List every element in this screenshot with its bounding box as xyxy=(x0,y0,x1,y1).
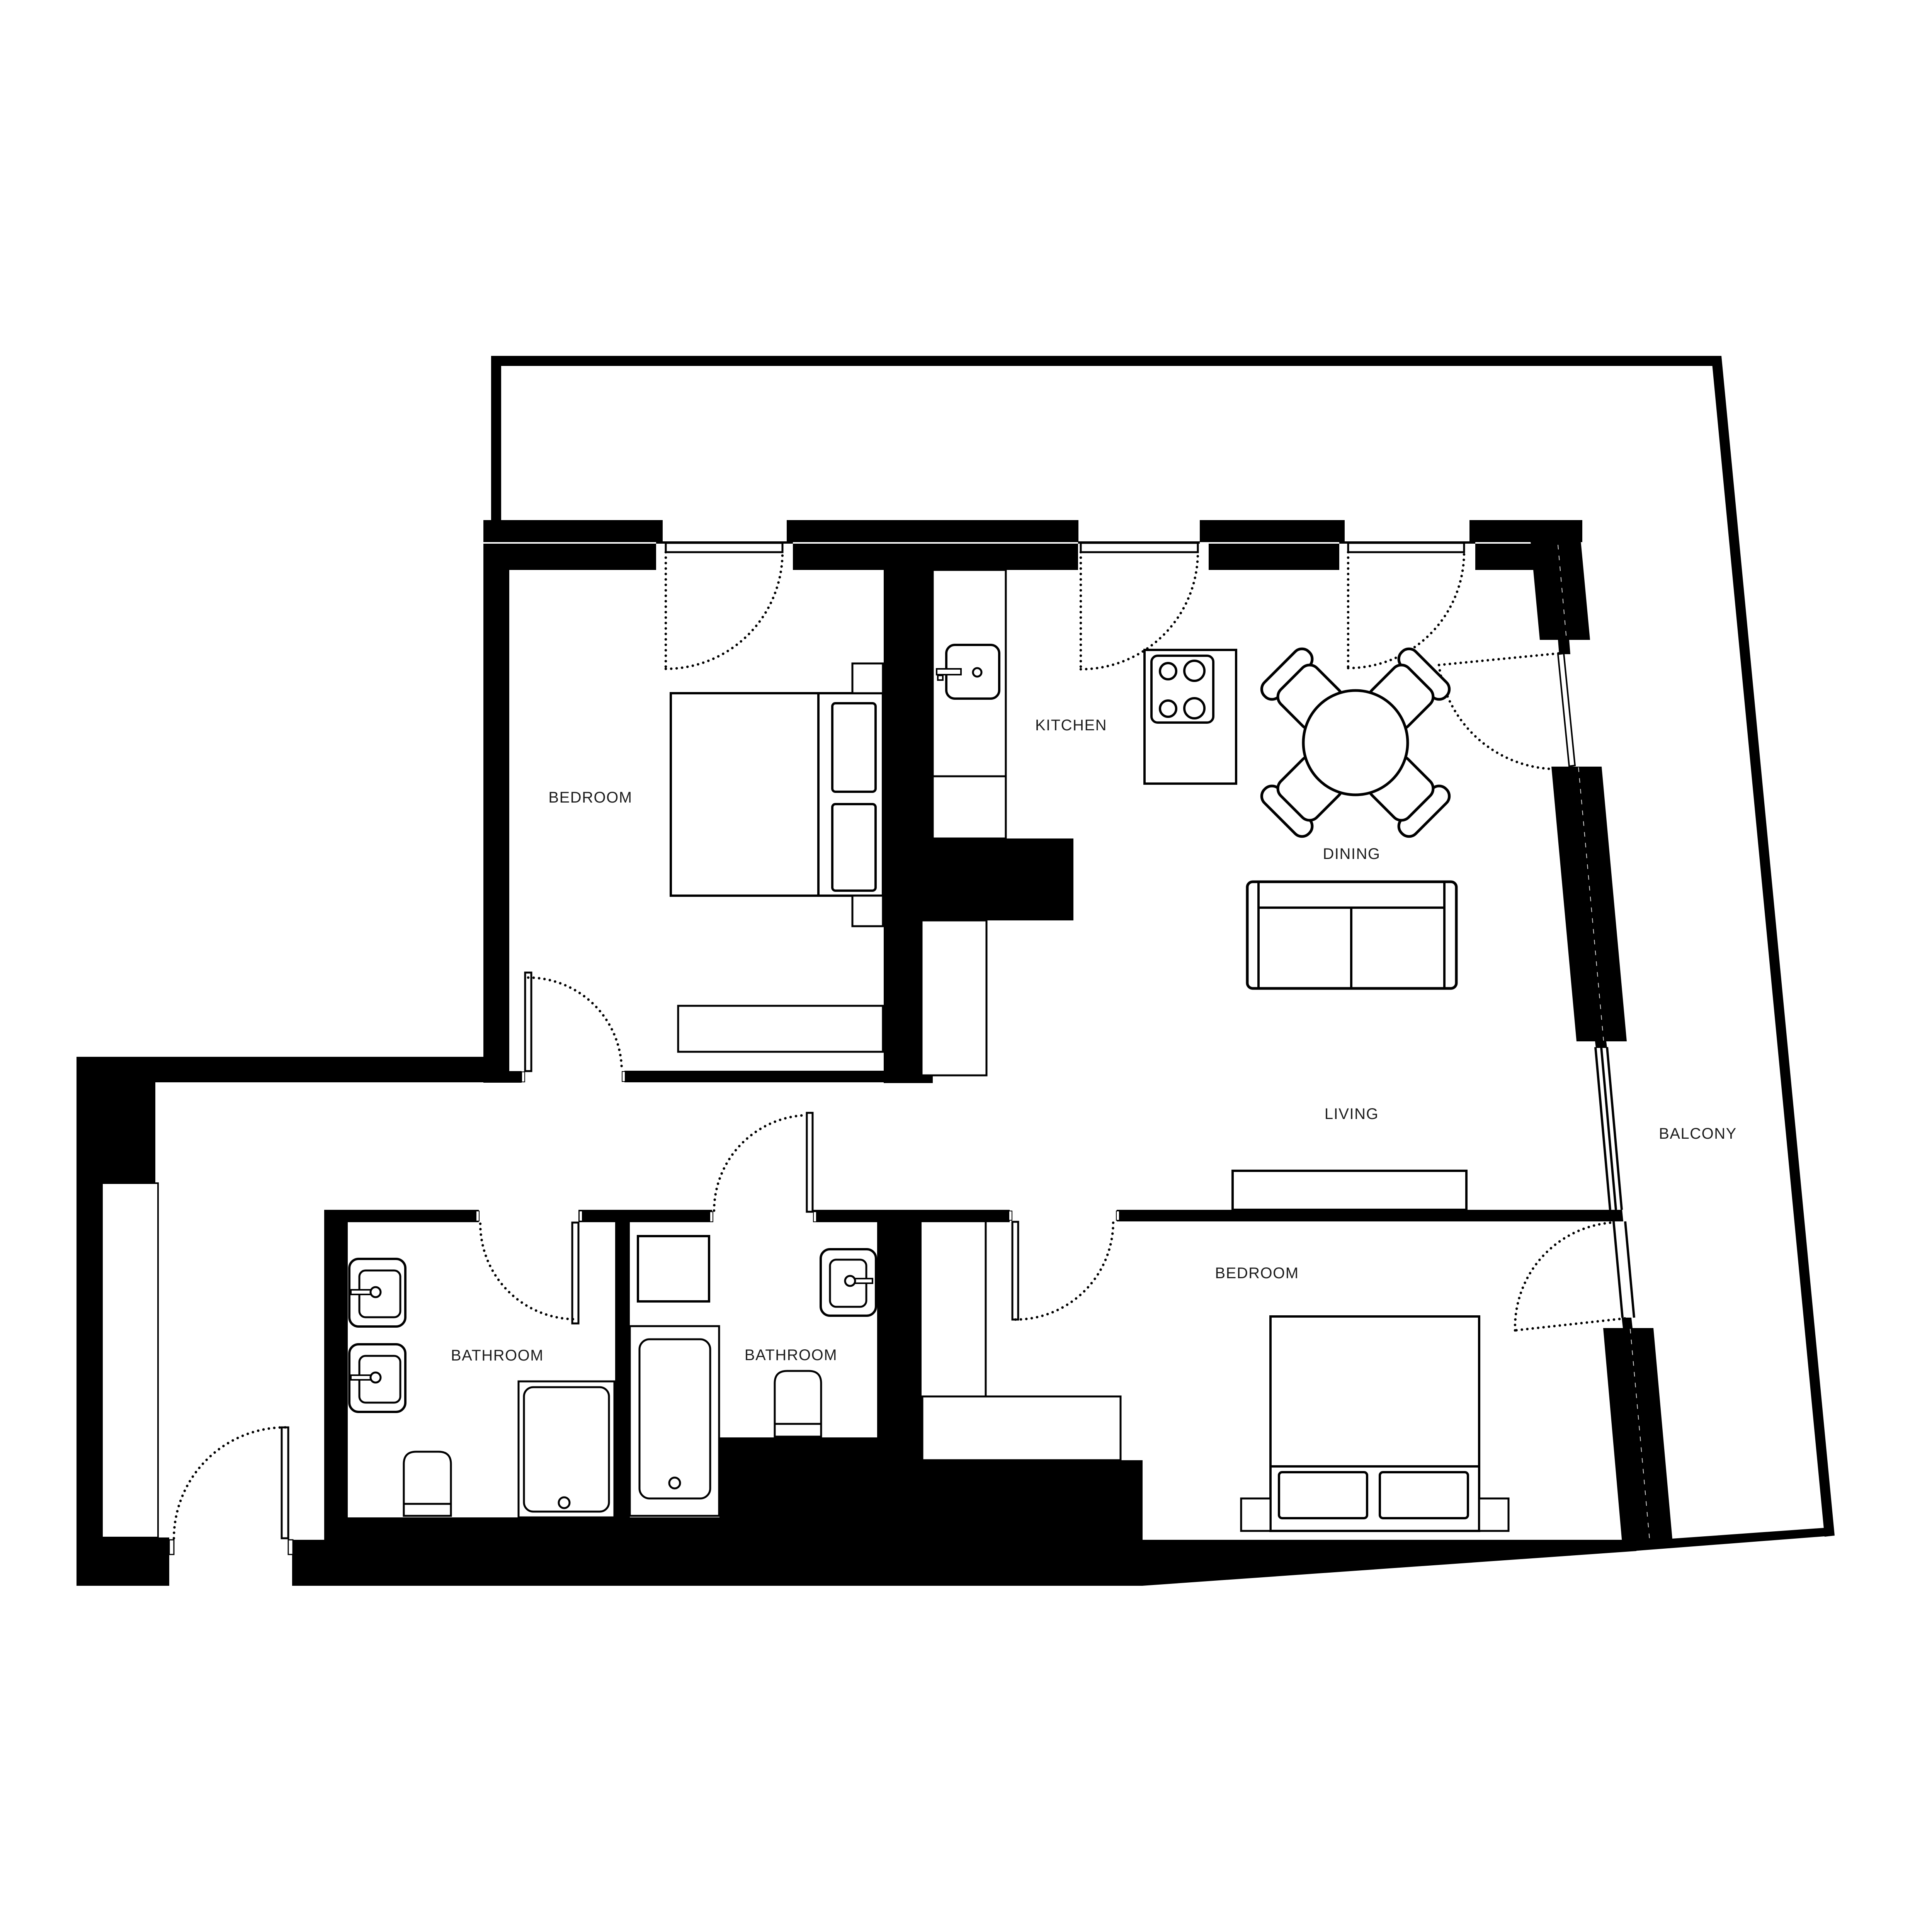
svg-text:BATHROOM: BATHROOM xyxy=(451,1347,544,1364)
svg-text:KITCHEN: KITCHEN xyxy=(1035,717,1107,734)
svg-text:BEDROOM: BEDROOM xyxy=(1215,1265,1299,1282)
svg-text:LIVING: LIVING xyxy=(1325,1105,1379,1122)
svg-text:DINING: DINING xyxy=(1323,845,1381,862)
svg-text:BATHROOM: BATHROOM xyxy=(745,1347,837,1364)
svg-text:BALCONY: BALCONY xyxy=(1659,1125,1737,1142)
svg-text:BEDROOM: BEDROOM xyxy=(548,789,632,806)
